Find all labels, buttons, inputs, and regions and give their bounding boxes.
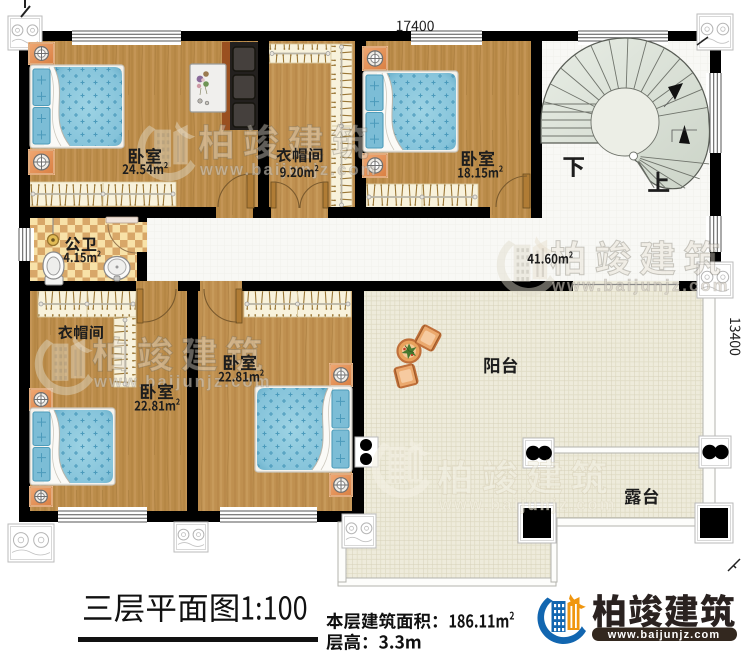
svg-text:www.baijunjz.com: www.baijunjz.com: [438, 496, 617, 514]
svg-text:www.baijunjz.com: www.baijunjz.com: [607, 629, 721, 641]
svg-text:www.baijunjz.com: www.baijunjz.com: [551, 277, 730, 295]
svg-text:www.baijunjz.com: www.baijunjz.com: [93, 373, 272, 391]
